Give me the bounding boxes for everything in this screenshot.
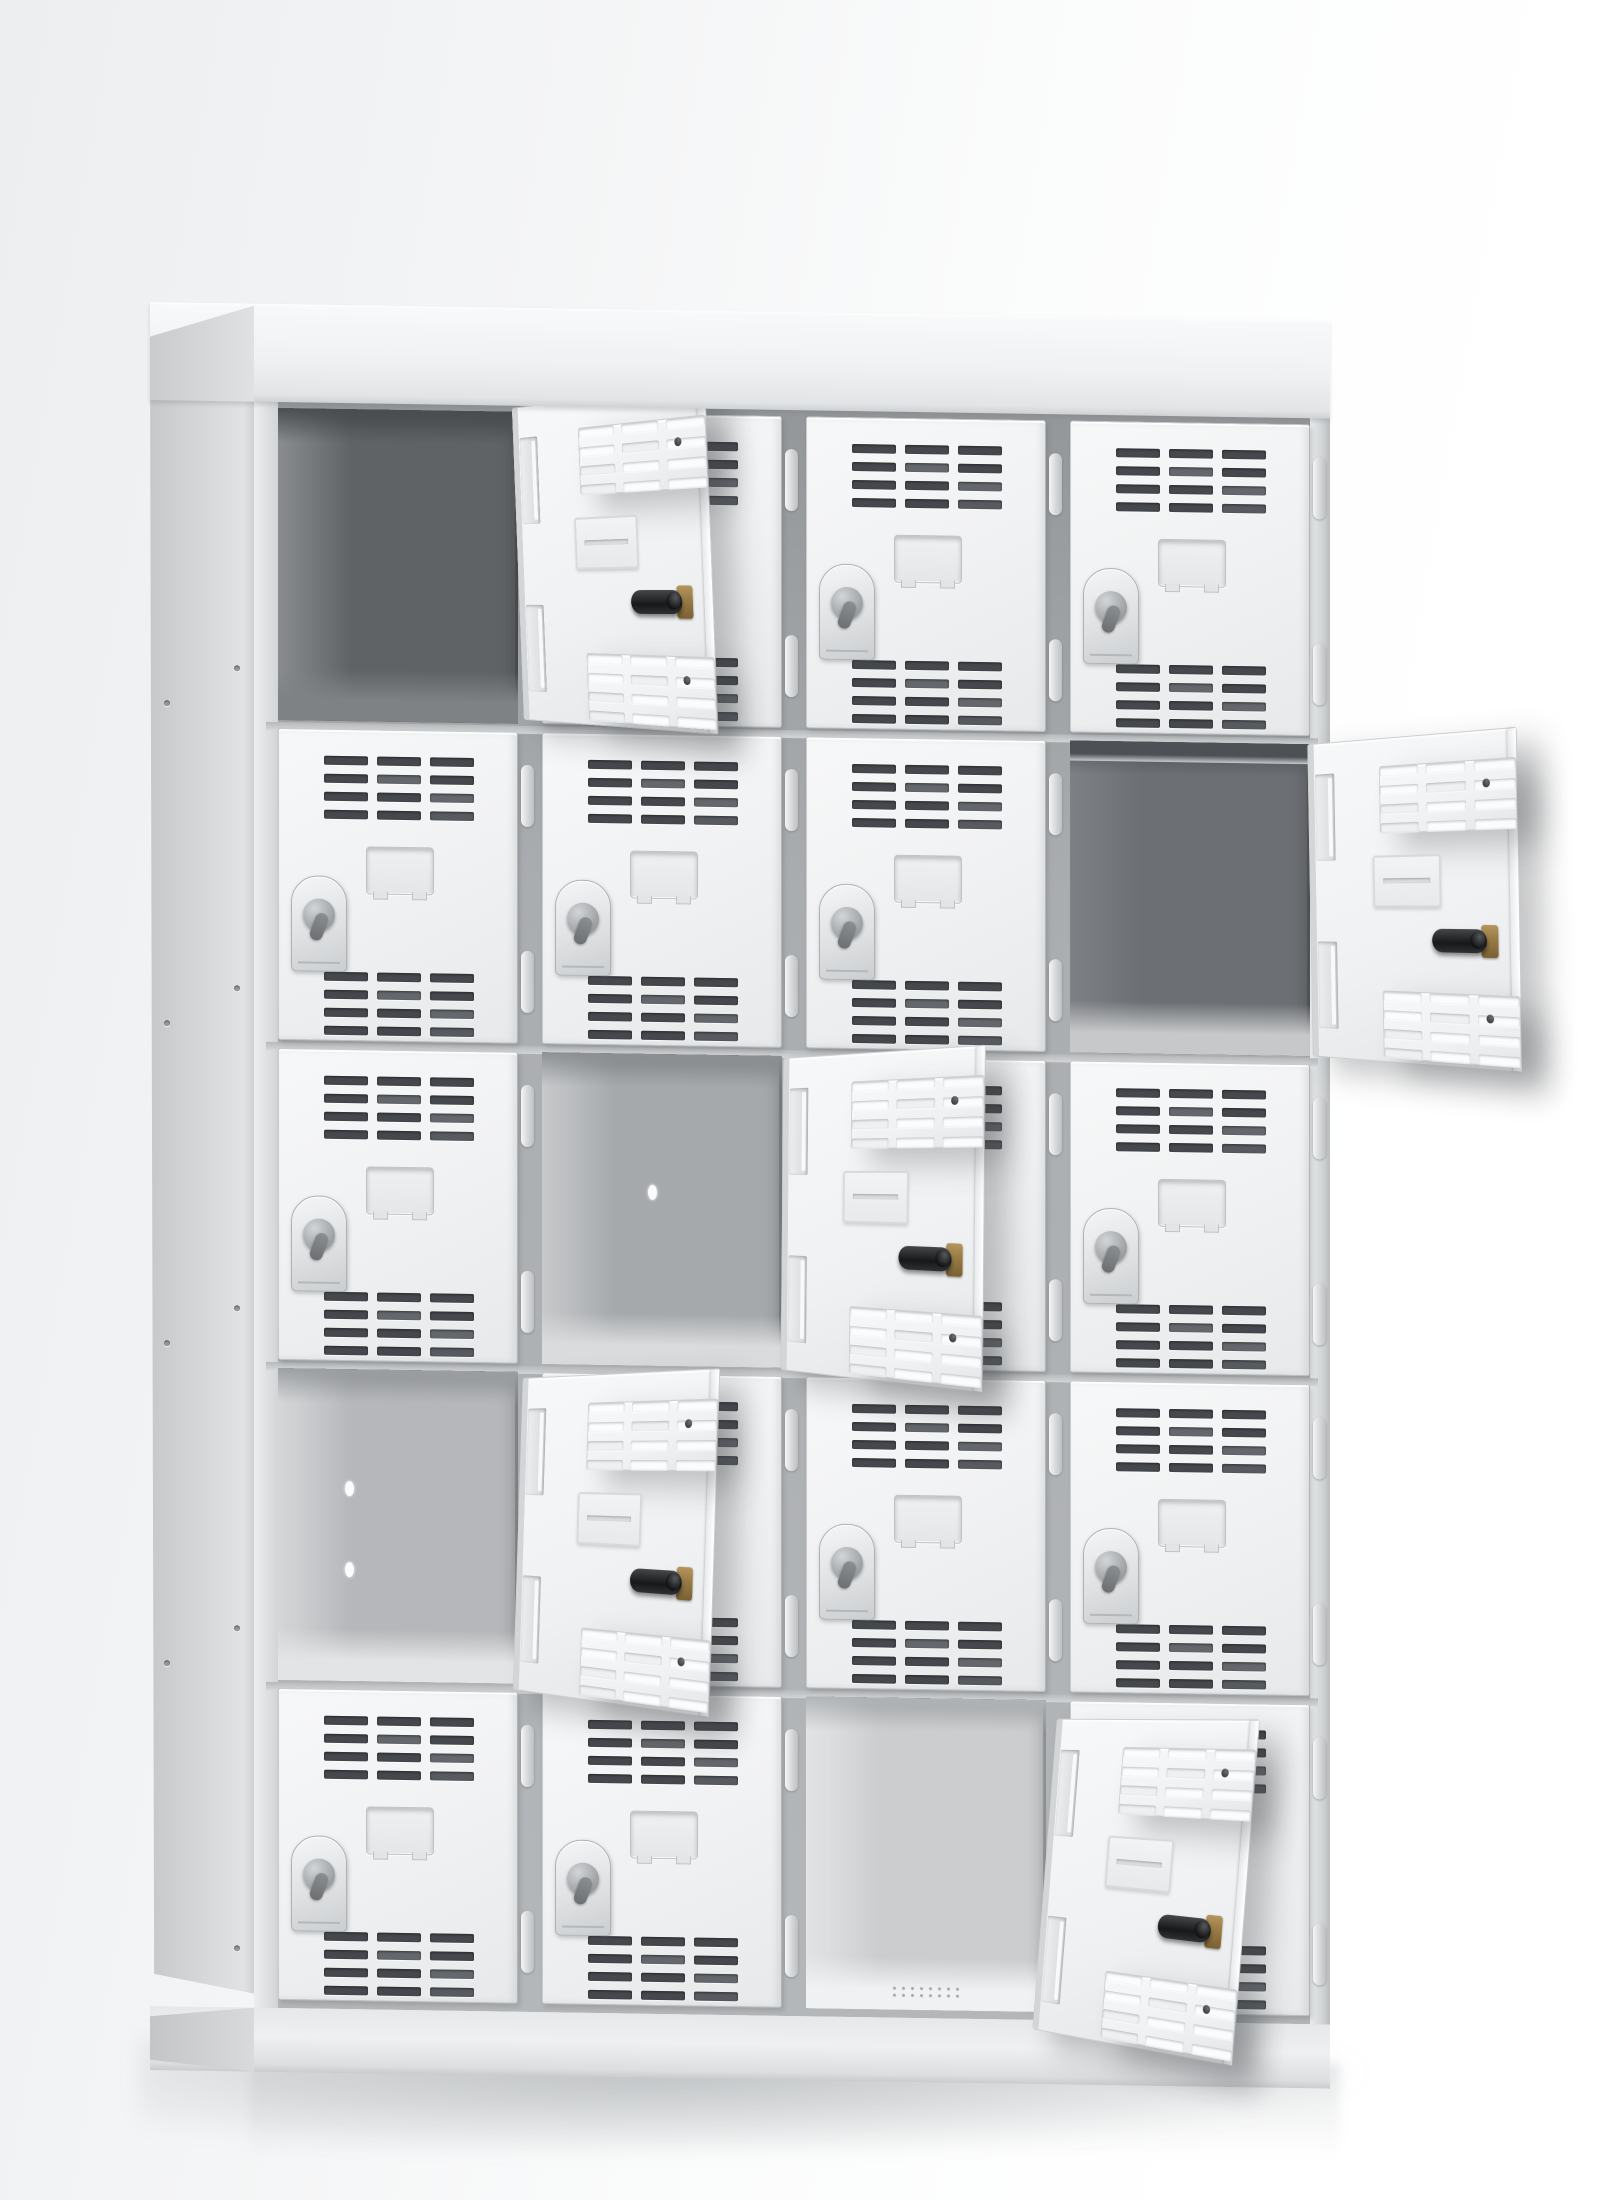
vent-slot: [905, 1657, 949, 1667]
vent-slot: [377, 1717, 421, 1727]
vent-slot: [588, 1972, 632, 1982]
vent-slot: [1222, 1644, 1266, 1654]
door-hinge-bottom: [1049, 1279, 1062, 1341]
vent-slot: [694, 1992, 738, 2002]
vent-slot: [958, 680, 1002, 690]
vent-slot: [958, 982, 1002, 992]
door-hinge-bottom: [1049, 639, 1062, 701]
vent-slot: [430, 1077, 474, 1087]
vent-slot: [324, 1076, 368, 1086]
vent-slot: [1169, 1305, 1213, 1315]
locker-cell-r4c4: [1070, 1380, 1310, 1696]
vent-slot: [430, 1347, 474, 1357]
vent-grid-top: [586, 1398, 718, 1471]
vent-slot: [1116, 1304, 1160, 1314]
vent-slot: [641, 797, 685, 807]
vent-slot: [1116, 1642, 1160, 1652]
vent-slot: [324, 1770, 368, 1780]
vent-slot: [905, 819, 949, 829]
vent-grid-bottom: [586, 653, 717, 730]
vent-slot: [896, 1118, 935, 1129]
interior-floor: [1070, 1000, 1310, 1056]
vent-slot: [641, 815, 685, 825]
locker-door-closed: [278, 1048, 518, 1364]
arch-cam-lock: [819, 1524, 875, 1621]
side-panel-hole: [164, 700, 170, 706]
vent-slot: [641, 1757, 685, 1767]
vent-slot: [1116, 664, 1160, 674]
vent-slot: [958, 1036, 1002, 1046]
vent-slot: [852, 800, 896, 810]
vent-slot: [852, 1422, 896, 1432]
vent-slot: [669, 1677, 709, 1692]
vent-grid-bottom: [1383, 990, 1522, 1068]
vent-slot: [852, 764, 896, 774]
side-panel-hole: [164, 1340, 170, 1346]
vent-slot: [324, 1328, 368, 1338]
vent-slot: [1116, 502, 1160, 512]
vent-slot: [1478, 1015, 1520, 1027]
vent-slot: [430, 1311, 474, 1321]
vent-slot: [623, 480, 660, 492]
vent-slot: [1168, 1749, 1207, 1760]
vent-slot: [1474, 778, 1516, 790]
vent-slot: [1222, 1126, 1266, 1136]
vent-slot: [1222, 1626, 1266, 1636]
lock-cylinder-knob: [630, 1568, 682, 1596]
door-hinge-top: [1313, 1097, 1326, 1159]
door-hinge-bottom: [785, 635, 798, 697]
vent-slot: [1169, 485, 1213, 495]
vent-slot: [324, 1716, 368, 1726]
locker-cell-r1c1: [278, 408, 518, 724]
vent-slot: [641, 1013, 685, 1023]
vent-slot: [377, 973, 421, 983]
vent-slot: [1222, 1662, 1266, 1672]
open-compartment-interior: [806, 1696, 1046, 2012]
vent-slot: [1169, 1089, 1213, 1099]
vent-slot: [324, 792, 368, 802]
vent-slot: [852, 1674, 896, 1684]
locker-cell-r2c4: [1070, 740, 1310, 1056]
vent-slot: [1478, 996, 1520, 1008]
vent-slot: [958, 446, 1002, 456]
vent-slot: [1116, 1358, 1160, 1368]
vent-slot: [377, 1311, 421, 1321]
vent-slot: [694, 1032, 738, 1042]
vent-slot: [694, 798, 738, 808]
door-inner-face: [1307, 727, 1522, 1073]
vent-slot: [850, 1345, 887, 1358]
vent-slot: [1116, 466, 1160, 476]
vent-slot: [588, 1954, 632, 1964]
vent-slot: [1145, 2035, 1184, 2052]
vent-slot: [905, 999, 949, 1009]
vent-slot: [1116, 1426, 1160, 1436]
vent-slot: [324, 1932, 368, 1942]
vent-slot: [1426, 761, 1466, 773]
vent-slot: [1116, 1444, 1160, 1454]
vent-slot: [677, 1420, 717, 1431]
locker-cell-r1c3: [806, 416, 1046, 732]
lock-cylinder-knob: [631, 590, 683, 614]
vent-slot: [941, 1334, 982, 1348]
vent-slot: [852, 1458, 896, 1468]
vent-slot: [324, 1112, 368, 1122]
vent-grid-bottom: [1116, 1624, 1266, 1689]
door-hinge-top: [1049, 1413, 1062, 1475]
locker-cabinet: [150, 302, 1330, 2089]
vent-slot: [641, 1721, 685, 1731]
vent-slot: [1169, 1359, 1213, 1369]
vent-slot: [905, 1639, 949, 1649]
vent-slot: [1211, 1789, 1252, 1801]
vent-slot: [1193, 2024, 1234, 2041]
vent-slot: [377, 1293, 421, 1303]
vent-slot: [588, 1422, 624, 1432]
side-panel-hole: [234, 985, 240, 991]
vent-slot: [430, 811, 474, 821]
vent-slot: [324, 1130, 368, 1140]
vent-slot: [694, 1740, 738, 1750]
vent-slot: [377, 1329, 421, 1339]
vent-grid-top: [852, 1404, 1002, 1469]
vent-grid-bottom: [579, 1627, 711, 1713]
locker-door-closed: [806, 416, 1046, 732]
vent-slot: [588, 1030, 632, 1040]
vent-slot: [377, 1753, 421, 1763]
vent-slot: [958, 1676, 1002, 1686]
vent-slot: [430, 1717, 474, 1727]
vent-grid-bottom: [324, 1932, 474, 1997]
vent-slot: [324, 810, 368, 820]
vent-slot: [943, 1076, 984, 1088]
interior-floor: [278, 668, 518, 724]
vent-grid-top: [1116, 1408, 1266, 1473]
interior-top-shadow: [278, 408, 518, 446]
label-holder: [366, 846, 434, 895]
product-photo-scene: [0, 0, 1600, 2200]
side-panel-hole: [234, 1305, 240, 1311]
vent-slot: [1169, 719, 1213, 729]
vent-slot: [377, 811, 421, 821]
vent-slot: [1222, 468, 1266, 478]
vent-slot: [896, 1098, 935, 1109]
vent-slot: [852, 480, 896, 490]
vent-slot: [905, 1621, 949, 1631]
vent-slot: [641, 977, 685, 987]
arch-cam-lock: [555, 1839, 611, 1936]
vent-slot: [430, 1987, 474, 1997]
vent-slot: [588, 673, 624, 684]
vent-slot: [905, 981, 949, 991]
vent-slot: [579, 425, 614, 438]
vent-slot: [1191, 2044, 1232, 2061]
vent-slot: [1384, 991, 1422, 1002]
vent-slot: [694, 1974, 738, 1984]
vent-slot: [905, 801, 949, 811]
vent-slot: [943, 1116, 984, 1127]
vent-slot: [676, 1440, 716, 1450]
vent-grid-bottom: [324, 972, 474, 1037]
vent-slot: [324, 1292, 368, 1302]
door-hinge-bottom: [1313, 1283, 1326, 1345]
vent-slot: [430, 1027, 474, 1037]
vent-slot: [580, 1666, 616, 1680]
hinge-recess-bottom: [520, 1575, 541, 1664]
vent-slot: [852, 498, 896, 508]
vent-slot: [905, 463, 949, 473]
vent-slot: [852, 1656, 896, 1666]
hinge-recess-top: [520, 436, 541, 524]
hinge-recess-top: [1315, 773, 1336, 861]
vent-slot: [905, 1423, 949, 1433]
vent-grid-bottom: [324, 1292, 474, 1357]
vent-slot: [324, 1734, 368, 1744]
vent-slot: [588, 1720, 632, 1730]
vent-slot: [1148, 1997, 1187, 2013]
vent-slot: [675, 657, 715, 668]
vent-slot: [669, 1657, 709, 1672]
locker-cell-r2c3: [806, 736, 1046, 1052]
vent-slot: [905, 697, 949, 707]
vent-slot: [1169, 1107, 1213, 1117]
door-hinge-top: [785, 769, 798, 831]
label-holder-clip: [843, 1171, 909, 1225]
door-hinge-bottom: [521, 951, 534, 1013]
vent-slot: [668, 476, 707, 489]
vent-slot: [1169, 1409, 1213, 1419]
vent-slot: [324, 1950, 368, 1960]
vent-slot: [430, 1933, 474, 1943]
vent-slot: [1101, 2028, 1138, 2044]
vent-slot: [958, 662, 1002, 672]
vent-grid-top: [324, 1716, 474, 1781]
vent-slot: [1116, 1142, 1160, 1152]
vent-slot: [324, 1094, 368, 1104]
vent-slot: [324, 756, 368, 766]
vent-slot: [1222, 1144, 1266, 1154]
vent-slot: [1123, 1748, 1160, 1758]
vent-slot: [694, 816, 738, 826]
vent-slot: [632, 1401, 670, 1412]
door-hinge-bottom: [521, 1271, 534, 1333]
vent-slot: [641, 1991, 685, 2001]
label-holder: [1158, 1179, 1226, 1228]
vent-slot: [588, 760, 632, 770]
locker-door-closed: [542, 1692, 782, 2008]
vent-slot: [430, 1771, 474, 1781]
label-holder: [894, 1495, 962, 1544]
vent-slot: [1165, 1787, 1204, 1798]
vent-slot: [324, 1346, 368, 1356]
vent-grid-bottom: [852, 660, 1002, 725]
vent-slot: [377, 1095, 421, 1105]
vent-slot: [1122, 1767, 1159, 1778]
vent-slot: [581, 1647, 617, 1661]
vent-slot: [676, 697, 716, 709]
side-panel-hole: [164, 1660, 170, 1666]
vent-slot: [958, 716, 1002, 726]
vent-slot: [377, 1933, 421, 1943]
vent-slot: [852, 660, 896, 670]
vent-slot: [666, 436, 705, 450]
vent-slot: [1385, 1047, 1423, 1059]
vent-slot: [377, 1347, 421, 1357]
vent-slot: [1194, 2004, 1235, 2020]
vent-grid-top: [852, 444, 1002, 509]
label-holder: [894, 855, 962, 904]
door-hinge-bottom: [1313, 1603, 1326, 1665]
vent-slot: [852, 1100, 889, 1111]
vent-slot: [631, 1440, 669, 1450]
door-screw-bottom: [949, 1333, 956, 1342]
vent-slot: [1169, 1143, 1213, 1153]
vent-slot: [1169, 449, 1213, 459]
vent-slot: [850, 1307, 887, 1319]
vent-slot: [1163, 1806, 1202, 1818]
open-compartment-interior: [278, 408, 518, 724]
vent-slot: [894, 1349, 933, 1362]
vent-grid-bottom: [1116, 1304, 1266, 1369]
vent-slot: [1222, 1446, 1266, 1456]
label-holder-clip: [577, 1492, 642, 1547]
vent-slot: [1430, 1032, 1470, 1044]
vent-grid-top: [1116, 1088, 1266, 1153]
vent-slot: [377, 775, 421, 785]
vent-slot: [1381, 822, 1419, 833]
vent-slot: [641, 1739, 685, 1749]
vent-slot: [430, 1753, 474, 1763]
vent-slot: [1119, 1804, 1156, 1815]
vent-slot: [1169, 1125, 1213, 1135]
vent-slot: [1222, 720, 1266, 730]
cabinet-top-cap: [150, 302, 1330, 419]
vent-slot: [587, 654, 623, 665]
vent-slot: [623, 1671, 661, 1685]
vent-slot: [958, 1622, 1002, 1632]
vent-grid-top: [324, 756, 474, 821]
vent-slot: [1169, 683, 1213, 693]
vent-slot: [852, 1620, 896, 1630]
vent-slot: [589, 692, 625, 704]
vent-slot: [1169, 1625, 1213, 1635]
vent-slot: [377, 757, 421, 767]
vent-slot: [1222, 504, 1266, 514]
door-screw-bottom: [1486, 1014, 1494, 1023]
vent-slot: [324, 1986, 368, 1996]
vent-slot: [324, 1310, 368, 1320]
vent-slot: [1222, 450, 1266, 460]
vent-slot: [905, 1017, 949, 1027]
door-hinge-top: [1049, 453, 1062, 515]
vent-slot: [641, 1937, 685, 1947]
vent-slot: [324, 990, 368, 1000]
lock-cylinder-knob: [1157, 1914, 1212, 1944]
vent-slot: [631, 675, 668, 687]
vent-slot: [641, 1031, 685, 1041]
open-door: [512, 384, 719, 735]
vent-slot: [694, 762, 738, 772]
vent-slot: [905, 1405, 949, 1415]
vent-slot: [1116, 1088, 1160, 1098]
vent-slot: [430, 1951, 474, 1961]
locker-cell-r5c1: [278, 1688, 518, 2004]
label-holder: [1158, 539, 1226, 588]
vent-slot: [694, 1956, 738, 1966]
vent-slot: [852, 998, 896, 1008]
vent-slot: [668, 1697, 708, 1712]
vent-slot: [694, 780, 738, 790]
open-door: [1307, 727, 1522, 1073]
vent-slot: [896, 1078, 935, 1090]
label-holder: [630, 1811, 698, 1860]
interior-mounting-hole: [648, 1185, 657, 1200]
vent-slot: [850, 1326, 887, 1339]
vent-slot: [905, 765, 949, 775]
vent-slot: [958, 1442, 1002, 1452]
vent-slot: [377, 1735, 421, 1745]
vent-grid-top: [1379, 757, 1518, 834]
vent-slot: [377, 1951, 421, 1961]
side-panel-hole: [164, 1980, 170, 1986]
door-hinge-top: [521, 1085, 534, 1147]
arch-cam-lock: [1083, 1528, 1139, 1625]
hinge-recess-top: [789, 1088, 808, 1175]
vent-slot: [1104, 1990, 1141, 2005]
vent-slot: [588, 1774, 632, 1784]
vent-slot: [1116, 1124, 1160, 1134]
vent-slot: [1479, 1054, 1521, 1067]
side-panel-hole: [164, 1020, 170, 1026]
vent-slot: [588, 1936, 632, 1946]
door-hinge-bottom: [1313, 643, 1326, 705]
vent-slot: [1147, 2016, 1186, 2032]
vent-slot: [1169, 1643, 1213, 1653]
vent-slot: [587, 1460, 623, 1470]
vent-slot: [852, 696, 896, 706]
vent-slot: [580, 464, 615, 476]
vent-slot: [641, 1775, 685, 1785]
arch-cam-lock: [819, 884, 875, 981]
vent-slot: [958, 464, 1002, 474]
vent-slot: [852, 1638, 896, 1648]
vent-grid-bottom: [852, 1620, 1002, 1685]
vent-slot: [1222, 1090, 1266, 1100]
interior-floor-vents: [890, 1985, 962, 2001]
label-holder: [1158, 1499, 1226, 1548]
locker-door-closed: [806, 736, 1046, 1052]
vent-slot: [905, 1459, 949, 1469]
vent-slot: [1222, 1680, 1266, 1690]
door-hinge-bottom: [521, 1911, 534, 1973]
vent-slot: [896, 1137, 935, 1147]
vent-slot: [1169, 1427, 1213, 1437]
arch-cam-lock: [555, 879, 611, 976]
vent-slot: [958, 1018, 1002, 1028]
open-door: [513, 1368, 720, 1718]
vent-slot: [1474, 758, 1516, 771]
door-hinge-top: [521, 1725, 534, 1787]
vent-slot: [850, 1363, 887, 1376]
locker-cell-r2c2: [542, 732, 782, 1048]
vent-slot: [430, 991, 474, 1001]
vent-slot: [852, 678, 896, 688]
vent-grid-top: [324, 1076, 474, 1141]
locker-door-closed: [542, 732, 782, 1048]
vent-slot: [1430, 993, 1470, 1004]
door-hinge-top: [785, 449, 798, 511]
